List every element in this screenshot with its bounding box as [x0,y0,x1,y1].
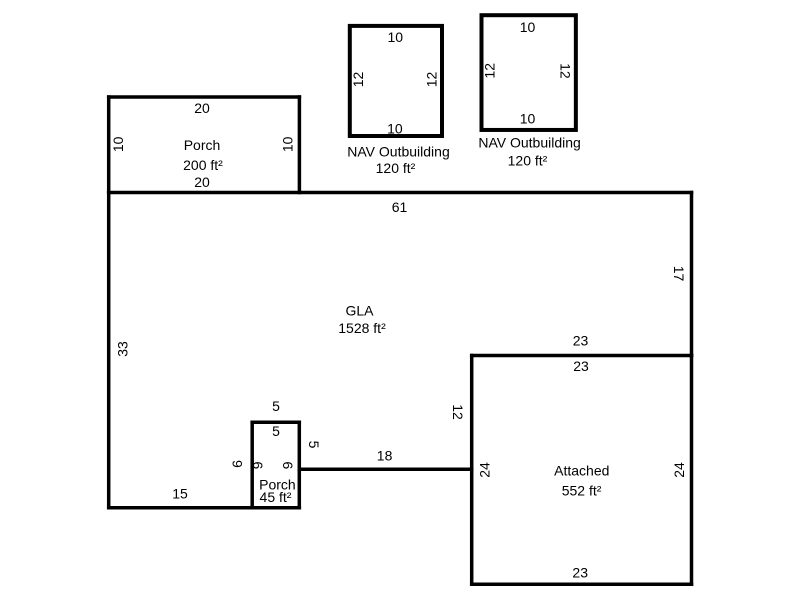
svg-text:33: 33 [115,341,131,357]
svg-text:10: 10 [110,136,126,152]
svg-text:Porch: Porch [184,137,221,153]
svg-text:9: 9 [230,460,246,468]
svg-text:GLA: GLA [345,303,374,319]
svg-text:10: 10 [279,136,295,152]
svg-text:5: 5 [272,423,280,439]
svg-text:23: 23 [572,564,588,580]
svg-text:NAV Outbuilding: NAV Outbuilding [347,143,449,159]
svg-text:10: 10 [388,29,404,45]
svg-text:61: 61 [392,199,408,215]
svg-text:15: 15 [172,486,188,502]
svg-text:20: 20 [194,174,210,190]
svg-text:1528 ft²: 1528 ft² [338,320,386,336]
svg-text:10: 10 [387,120,403,136]
svg-text:200 ft²: 200 ft² [183,157,223,173]
svg-text:23: 23 [573,333,589,349]
svg-text:45 ft²: 45 ft² [260,489,292,505]
svg-text:Attached: Attached [554,462,609,478]
svg-text:12: 12 [557,63,573,79]
svg-text:9: 9 [250,461,266,469]
svg-text:120 ft²: 120 ft² [508,152,548,168]
svg-text:12: 12 [424,72,440,88]
svg-text:9: 9 [280,461,296,469]
svg-text:552 ft²: 552 ft² [562,483,602,499]
svg-text:17: 17 [671,266,687,282]
svg-text:24: 24 [476,462,492,478]
svg-text:5: 5 [306,441,322,449]
svg-text:23: 23 [573,358,589,374]
svg-text:12: 12 [482,63,498,79]
svg-text:NAV Outbuilding: NAV Outbuilding [478,134,580,150]
svg-text:120 ft²: 120 ft² [376,160,416,176]
svg-text:12: 12 [450,404,466,420]
svg-text:10: 10 [520,111,536,127]
svg-text:5: 5 [272,398,280,414]
svg-text:20: 20 [194,100,210,116]
svg-text:12: 12 [350,72,366,88]
svg-text:18: 18 [377,448,393,464]
svg-text:24: 24 [671,462,687,478]
svg-text:10: 10 [520,19,536,35]
